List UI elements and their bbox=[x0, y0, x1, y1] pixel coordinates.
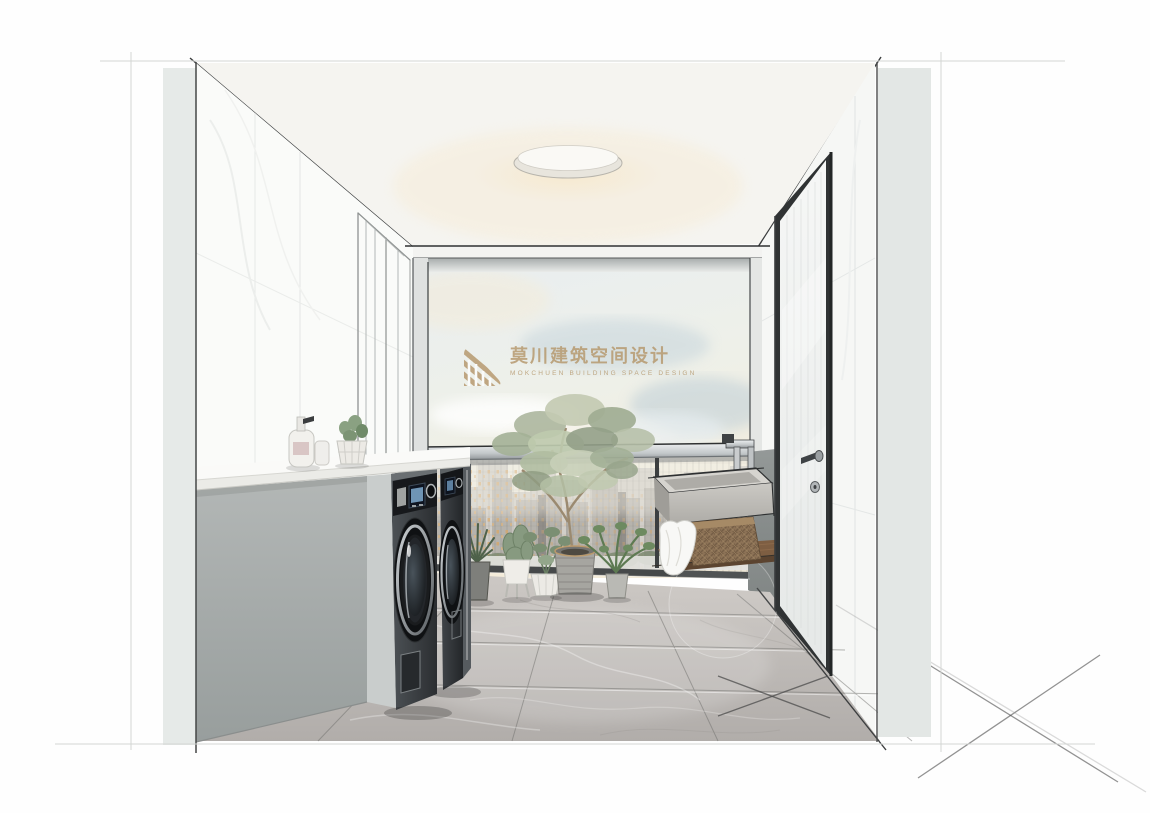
entry-door bbox=[775, 152, 831, 676]
edge-strip-right bbox=[877, 62, 931, 742]
washer-left-drawer bbox=[401, 651, 420, 693]
washer-right-knob bbox=[456, 479, 462, 488]
soap-label bbox=[293, 442, 309, 455]
tree-pot bbox=[555, 546, 595, 594]
window-head-beam bbox=[413, 246, 762, 258]
interior-rendering: 莫川建筑空间设计 MOKCHUEN BUILDING SPACE DESIGN bbox=[0, 0, 1150, 813]
cabinet bbox=[196, 474, 396, 742]
washer-left-knob bbox=[427, 485, 436, 498]
washer-left-label bbox=[397, 487, 406, 507]
window-mullion bbox=[655, 458, 659, 568]
wicker-basket bbox=[685, 517, 761, 566]
edge-strip-left bbox=[163, 62, 196, 753]
counter-cup bbox=[315, 441, 329, 465]
washer-left-display bbox=[411, 487, 423, 503]
scene-svg bbox=[0, 0, 1150, 813]
window-right-post bbox=[750, 258, 762, 454]
